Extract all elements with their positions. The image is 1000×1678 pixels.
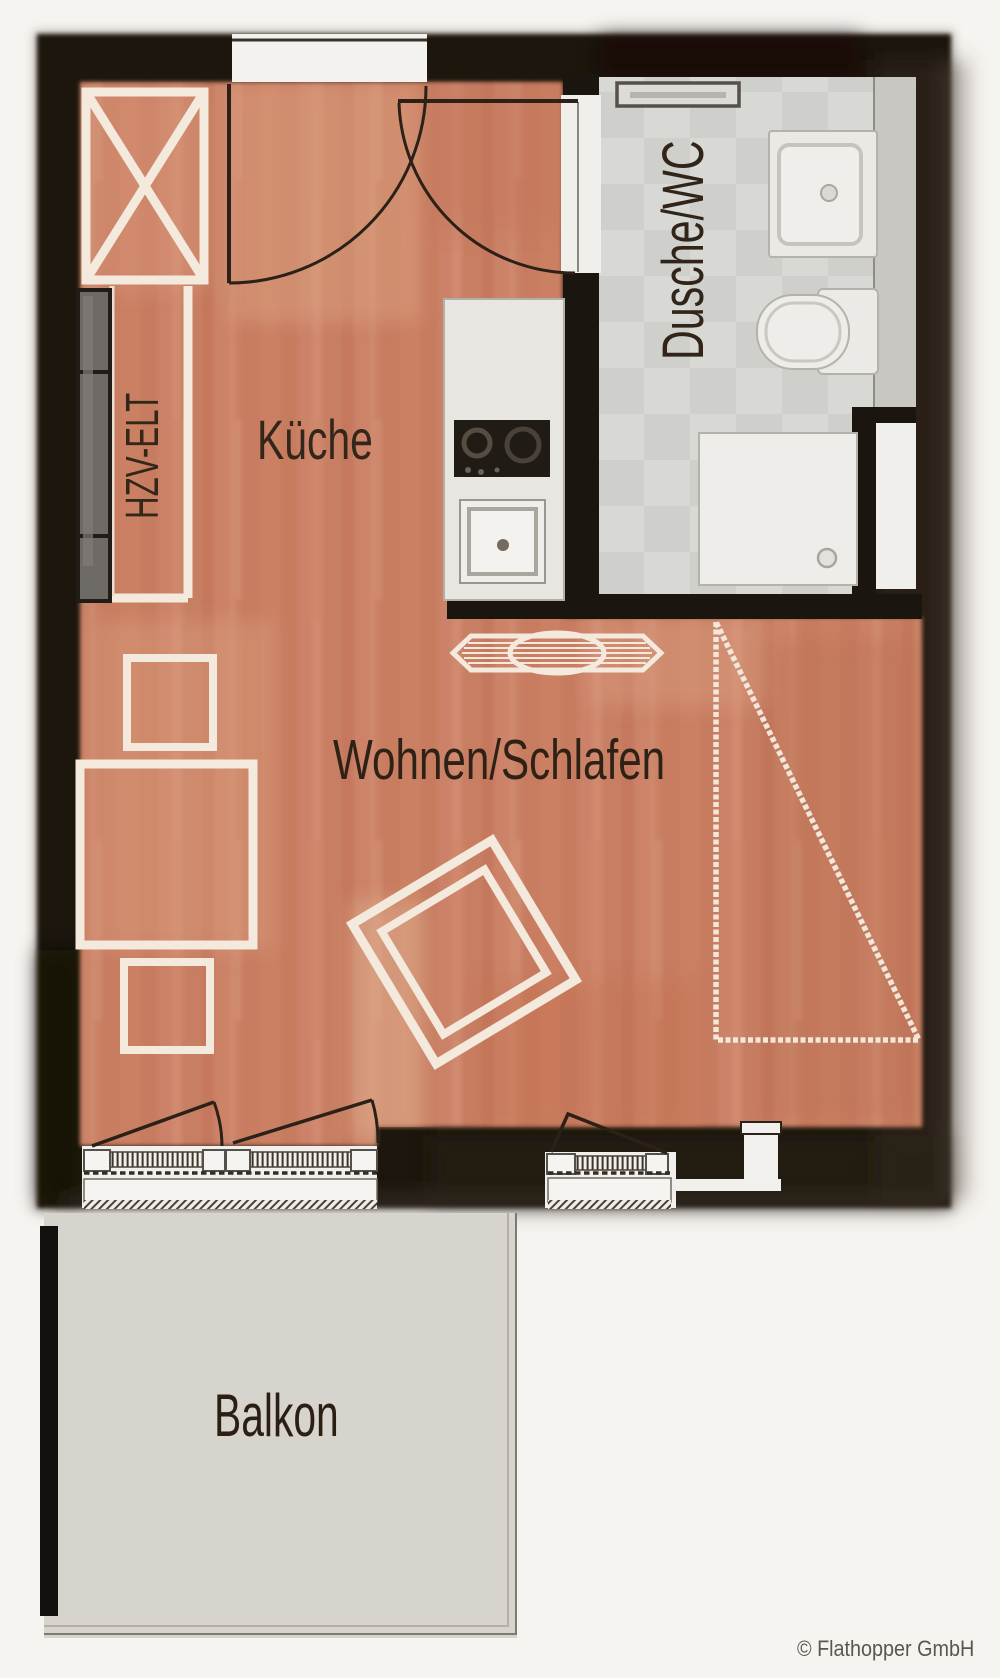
svg-text:Wohnen/Schlafen: Wohnen/Schlafen — [333, 728, 665, 792]
svg-text:HZV-ELT: HZV-ELT — [117, 393, 168, 519]
svg-text:Balkon: Balkon — [214, 1382, 339, 1449]
svg-text:© Flathopper GmbH: © Flathopper GmbH — [797, 1637, 974, 1661]
svg-text:Küche: Küche — [257, 410, 373, 472]
svg-text:Dusche/WC: Dusche/WC — [650, 140, 716, 360]
